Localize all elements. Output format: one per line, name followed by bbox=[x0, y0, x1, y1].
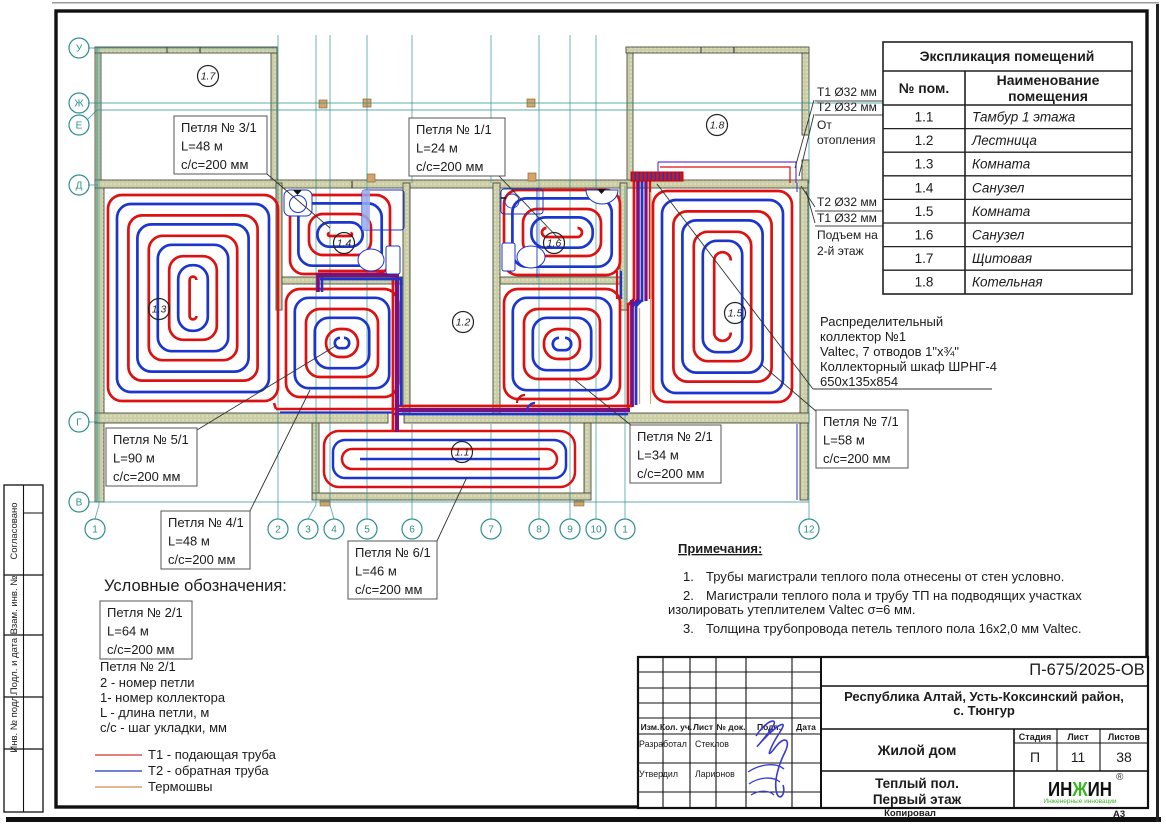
svg-text:Кол. уч.: Кол. уч. bbox=[660, 722, 692, 732]
svg-text:L - длина петли, м: L - длина петли, м bbox=[100, 705, 209, 720]
svg-text:2: 2 bbox=[275, 525, 281, 536]
svg-text:Петля № 4/1: Петля № 4/1 bbox=[168, 515, 244, 530]
svg-text:Valtec, 7 отводов 1"х¾": Valtec, 7 отводов 1"х¾" bbox=[820, 344, 959, 359]
svg-text:Теплый пол.: Теплый пол. bbox=[875, 776, 959, 791]
svg-text:Петля № 1/1: Петля № 1/1 bbox=[416, 122, 492, 137]
svg-text:1.6: 1.6 bbox=[915, 228, 934, 243]
svg-text:1.2: 1.2 bbox=[456, 317, 471, 329]
svg-text:1.2: 1.2 bbox=[915, 133, 934, 148]
svg-text:с/с - шаг укладки, мм: с/с - шаг укладки, мм bbox=[100, 720, 227, 735]
svg-text:Изм.: Изм. bbox=[641, 722, 660, 732]
svg-text:От: От bbox=[817, 118, 832, 132]
svg-text:Условные обозначения:: Условные обозначения: bbox=[104, 577, 287, 595]
svg-text:с/с=200 мм: с/с=200 мм bbox=[181, 157, 248, 172]
svg-text:Лист: Лист bbox=[693, 722, 713, 732]
svg-text:№ пом.: № пом. bbox=[899, 80, 950, 96]
svg-text:Республика Алтай, Усть-Коксинс: Республика Алтай, Усть-Коксинский район, bbox=[844, 689, 1124, 704]
svg-text:2-й этаж: 2-й этаж bbox=[817, 244, 864, 258]
svg-text:Стадия: Стадия bbox=[1019, 732, 1051, 742]
svg-text:1.7: 1.7 bbox=[201, 71, 217, 83]
svg-text:Утвердил: Утвердил bbox=[639, 769, 678, 779]
svg-text:8: 8 bbox=[536, 525, 542, 536]
svg-text:Ларионов: Ларионов bbox=[695, 769, 735, 779]
svg-text:Коллекторный шкаф ШРНГ-4: Коллекторный шкаф ШРНГ-4 bbox=[820, 359, 997, 374]
svg-text:Петля № 2/1: Петля № 2/1 bbox=[107, 605, 183, 620]
svg-text:Распределительный: Распределительный bbox=[820, 314, 943, 329]
svg-text:L=90 м: L=90 м bbox=[113, 451, 155, 466]
svg-text:Санузел: Санузел bbox=[972, 180, 1025, 195]
svg-text:с/с=200 мм: с/с=200 мм bbox=[416, 159, 483, 174]
svg-text:Т2 Ø32 мм: Т2 Ø32 мм bbox=[817, 100, 877, 114]
svg-text:с/с=200 мм: с/с=200 мм bbox=[637, 466, 704, 481]
svg-text:1.3: 1.3 bbox=[915, 157, 934, 172]
svg-text:38: 38 bbox=[1116, 749, 1132, 765]
svg-text:Т2 - обратная труба: Т2 - обратная труба bbox=[148, 763, 269, 778]
svg-text:Магистрали теплого пола и труб: Магистрали теплого пола и трубу ТП на по… bbox=[706, 588, 1082, 603]
svg-text:Термошвы: Термошвы bbox=[148, 779, 213, 794]
svg-text:Тамбур 1 этажа: Тамбур 1 этажа bbox=[972, 110, 1076, 125]
svg-text:Т1 Ø32 мм: Т1 Ø32 мм bbox=[817, 85, 877, 99]
svg-text:Т1 Ø32 мм: Т1 Ø32 мм bbox=[817, 211, 877, 225]
svg-text:9: 9 bbox=[567, 525, 573, 536]
svg-text:1.3: 1.3 bbox=[152, 304, 167, 316]
svg-text:№ док.: № док. bbox=[716, 722, 745, 732]
svg-text:1.7: 1.7 bbox=[915, 251, 934, 266]
svg-text:Наименование: Наименование bbox=[997, 72, 1100, 88]
svg-text:Комната: Комната bbox=[972, 157, 1031, 172]
svg-text:2 - номер петли: 2 - номер петли bbox=[100, 675, 195, 690]
svg-text:Лестница: Лестница bbox=[971, 133, 1037, 148]
svg-text:L=58 м: L=58 м bbox=[823, 433, 865, 448]
svg-text:Т1 - подающая труба: Т1 - подающая труба bbox=[148, 747, 277, 762]
svg-text:Петля № 5/1: Петля № 5/1 bbox=[113, 432, 189, 447]
svg-text:1.8: 1.8 bbox=[710, 120, 725, 132]
svg-text:Петля № 2/1: Петля № 2/1 bbox=[637, 429, 713, 444]
svg-text:L=48 м: L=48 м bbox=[168, 534, 210, 549]
svg-text:5: 5 bbox=[364, 525, 370, 536]
svg-text:Инженерные инновации: Инженерные инновации bbox=[1043, 798, 1117, 805]
svg-text:П-675/2025-ОВ: П-675/2025-ОВ bbox=[1029, 661, 1145, 679]
svg-text:Петля № 7/1: Петля № 7/1 bbox=[823, 414, 899, 429]
svg-text:Щитовая: Щитовая bbox=[972, 251, 1032, 266]
svg-text:Санузел: Санузел bbox=[972, 228, 1025, 243]
svg-text:Д: Д bbox=[76, 181, 83, 192]
svg-text:с/с=200 мм: с/с=200 мм bbox=[113, 469, 180, 484]
svg-text:П: П bbox=[1030, 749, 1040, 765]
svg-text:L=48 м: L=48 м bbox=[181, 139, 223, 154]
svg-text:1- номер коллектора: 1- номер коллектора bbox=[100, 690, 226, 705]
svg-text:1.1: 1.1 bbox=[455, 447, 470, 459]
svg-text:Котельная: Котельная bbox=[972, 275, 1043, 290]
svg-text:Листов: Листов bbox=[1108, 732, 1141, 742]
svg-text:Петля № 6/1: Петля № 6/1 bbox=[355, 545, 431, 560]
svg-text:10: 10 bbox=[590, 525, 602, 536]
svg-text:коллектор №1: коллектор №1 bbox=[820, 329, 906, 344]
svg-text:Примечания:: Примечания: bbox=[678, 541, 762, 556]
svg-text:А3: А3 bbox=[1113, 809, 1125, 820]
svg-text:с/с=200 мм: с/с=200 мм bbox=[355, 582, 422, 597]
svg-text:1.: 1. bbox=[683, 569, 694, 584]
svg-text:L=24 м: L=24 м bbox=[416, 141, 458, 156]
svg-text:Согласовано: Согласовано bbox=[9, 502, 20, 559]
svg-text:Петля № 3/1: Петля № 3/1 bbox=[181, 120, 257, 135]
svg-text:1.4: 1.4 bbox=[337, 238, 352, 250]
svg-text:Толщина трубопровода петель те: Толщина трубопровода петель теплого пола… bbox=[706, 621, 1082, 636]
svg-text:изолировать утеплителем Valtec: изолировать утеплителем Valtec σ=6 мм. bbox=[668, 602, 916, 617]
svg-text:L=34 м: L=34 м bbox=[637, 448, 679, 463]
svg-text:Экспликация помещений: Экспликация помещений bbox=[920, 48, 1095, 64]
svg-text:7: 7 bbox=[488, 525, 494, 536]
svg-text:6: 6 bbox=[409, 525, 415, 536]
svg-text:с. Тюнгур: с. Тюнгур bbox=[953, 703, 1015, 718]
svg-text:с/с=200 мм: с/с=200 мм bbox=[823, 451, 890, 466]
svg-text:L=64 м: L=64 м bbox=[107, 624, 149, 639]
svg-text:Трубы магистрали теплого пола: Трубы магистрали теплого пола отнесены о… bbox=[706, 569, 1064, 584]
svg-text:Ж: Ж bbox=[74, 99, 84, 110]
svg-text:Подл. и дата: Подл. и дата bbox=[9, 637, 20, 694]
svg-text:Лист: Лист bbox=[1067, 732, 1089, 742]
svg-text:с/с=200 мм: с/с=200 мм bbox=[168, 552, 235, 567]
svg-text:4: 4 bbox=[331, 525, 337, 536]
svg-text:1: 1 bbox=[92, 525, 98, 536]
svg-text:1.5: 1.5 bbox=[915, 204, 934, 219]
svg-text:помещения: помещения bbox=[1008, 88, 1088, 104]
svg-text:Инв. № подл.: Инв. № подл. bbox=[9, 693, 20, 752]
svg-text:Первый этаж: Первый этаж bbox=[873, 792, 962, 807]
svg-text:Комната: Комната bbox=[972, 204, 1031, 219]
svg-text:Г: Г bbox=[76, 418, 82, 429]
svg-text:Стеклов: Стеклов bbox=[695, 739, 729, 749]
svg-text:В: В bbox=[76, 498, 83, 509]
svg-text:Т2 Ø32 мм: Т2 Ø32 мм bbox=[817, 195, 877, 209]
svg-text:с/с=200 мм: с/с=200 мм bbox=[107, 642, 174, 657]
svg-text:Подъем на: Подъем на bbox=[817, 228, 878, 242]
svg-text:1.4: 1.4 bbox=[915, 180, 934, 195]
svg-text:11: 11 bbox=[1071, 749, 1086, 765]
svg-text:Жилой дом: Жилой дом bbox=[877, 742, 957, 758]
svg-text:Петля № 2/1: Петля № 2/1 bbox=[100, 659, 176, 674]
svg-text:Дата: Дата bbox=[796, 722, 816, 732]
svg-text:1.1: 1.1 bbox=[915, 110, 934, 125]
svg-text:Е: Е bbox=[76, 121, 83, 132]
svg-text:12: 12 bbox=[803, 525, 815, 536]
svg-text:650х135х854: 650х135х854 bbox=[820, 374, 898, 389]
svg-text:3: 3 bbox=[305, 525, 311, 536]
svg-text:2.: 2. bbox=[683, 588, 694, 603]
svg-text:У: У bbox=[76, 44, 83, 55]
svg-text:1.8: 1.8 bbox=[915, 275, 934, 290]
svg-text:Копировал: Копировал bbox=[884, 808, 936, 819]
svg-text:L=46 м: L=46 м bbox=[355, 564, 397, 579]
svg-text:Разработал: Разработал bbox=[639, 739, 687, 749]
svg-text:®: ® bbox=[1116, 772, 1124, 783]
svg-text:Взам. инв. №: Взам. инв. № bbox=[9, 576, 20, 635]
svg-text:1: 1 bbox=[622, 525, 628, 536]
svg-text:отопления: отопления bbox=[817, 133, 875, 147]
svg-text:3.: 3. bbox=[683, 621, 694, 636]
svg-text:1.5: 1.5 bbox=[728, 308, 743, 320]
